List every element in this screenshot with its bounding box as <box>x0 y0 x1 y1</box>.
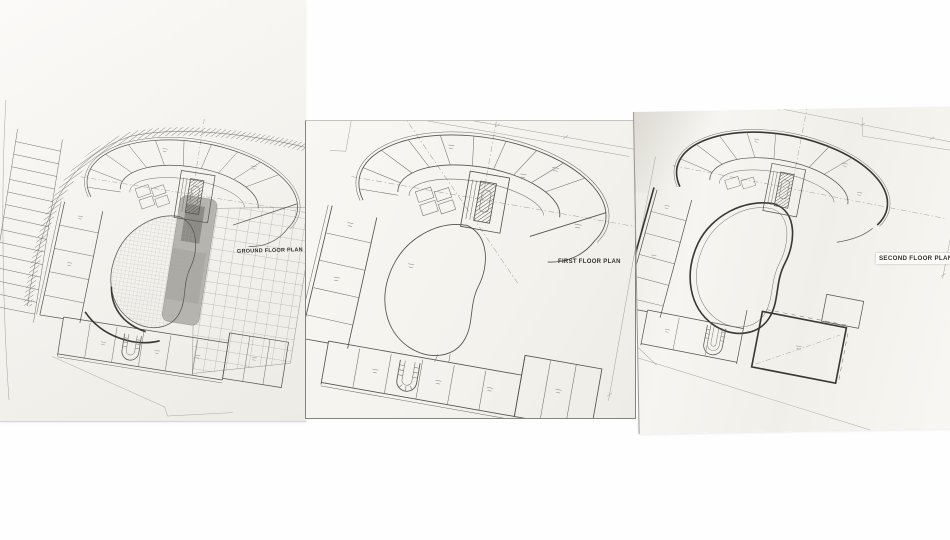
first-floor-photo-panel <box>305 120 636 419</box>
ground-floor-photo-panel <box>0 0 306 421</box>
second-floor-plan-drawing <box>634 106 950 433</box>
ground-floor-plan-drawing <box>0 0 306 421</box>
first-floor-plan-drawing <box>306 121 636 419</box>
second-floor-photo-panel <box>633 106 950 433</box>
second-floor-plan-title: SECOND FLOOR PLAN <box>876 253 950 264</box>
scanned-floor-plans-sheet: GROUND FLOOR PLAN FIRST FLOOR PLAN SECON… <box>0 0 950 540</box>
first-floor-plan-title: FIRST FLOOR PLAN <box>558 259 621 265</box>
